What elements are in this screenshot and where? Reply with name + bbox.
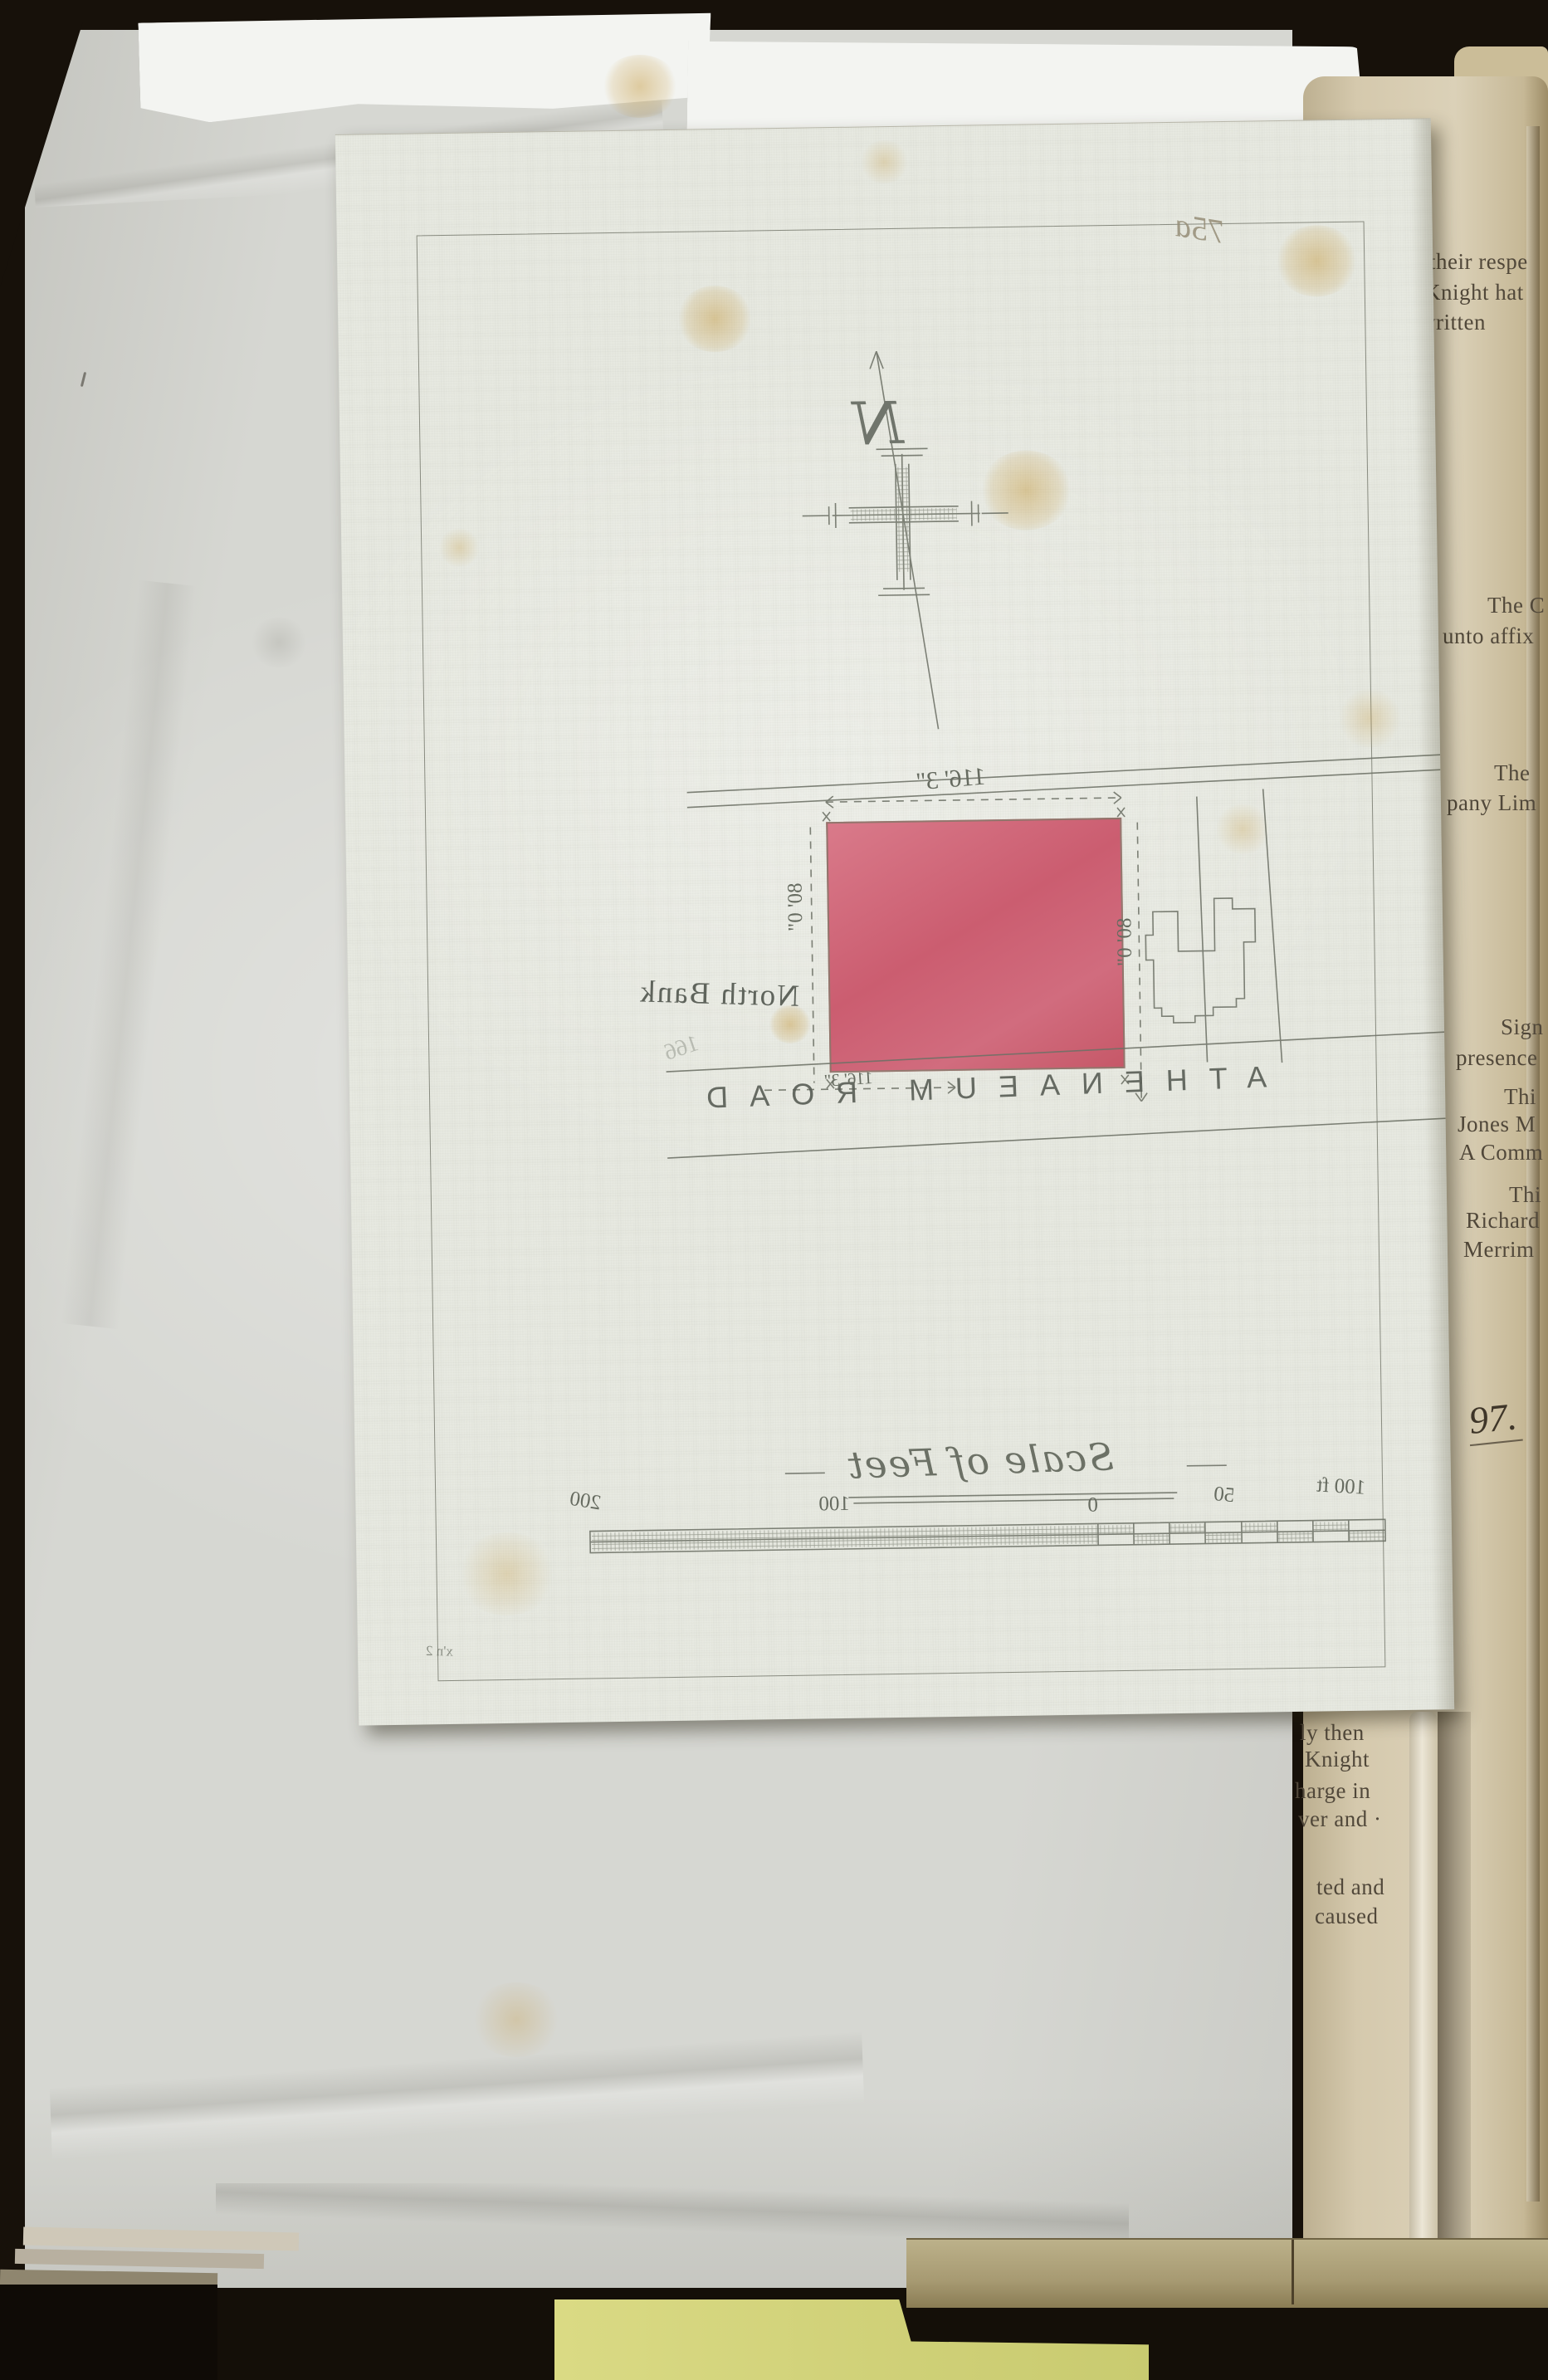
scale-title: Scale of Feet <box>846 1434 1115 1487</box>
sheet-number-annotation: 75a <box>1172 205 1228 252</box>
book-page-fore-edge <box>1409 1712 1438 2283</box>
dimension-bottom: 116' 3" <box>823 1068 873 1092</box>
book-text-fragment: harge in <box>1295 1778 1370 1804</box>
book-text-fragment: presence <box>1456 1045 1537 1071</box>
book-text-fragment: ly then <box>1300 1720 1365 1746</box>
dimension-left: 80' 0" <box>784 882 808 931</box>
book-text-fragment: unto affix <box>1443 623 1534 649</box>
book-text-fragment: their respe <box>1429 249 1528 275</box>
book-text-fragment: Knight hat <box>1424 280 1524 305</box>
book-text-fragment: ted and <box>1316 1874 1384 1900</box>
book-bottom-edge <box>906 2238 1548 2308</box>
page-gap <box>1292 2240 1294 2304</box>
book-text-fragment: Knight <box>1305 1747 1370 1772</box>
scale-tick-label: 0 <box>1087 1493 1098 1517</box>
book-text-fragment: Jones M <box>1458 1112 1536 1137</box>
book-text-fragment: Merrim <box>1463 1237 1534 1263</box>
book-text-fragment: Sign <box>1501 1014 1544 1040</box>
scale-tick-label: 100 <box>818 1493 850 1517</box>
scale-tick-label: 100 ft <box>1316 1473 1365 1499</box>
archival-scan: their respe Knight hat written The C unt… <box>0 0 1548 2380</box>
handwritten-page-number: 97. <box>1465 1394 1522 1446</box>
dimension-right: 80' 0" <box>1113 917 1137 966</box>
book-text-fragment: pany Lim <box>1447 790 1536 816</box>
book-text-fragment: Thi <box>1504 1084 1536 1110</box>
plan-sheet: 75a N North Bank 166 ATHENAEUM ROAD 116'… <box>335 118 1454 1725</box>
book-text-fragment: ver and · <box>1298 1806 1381 1832</box>
book-text-fragment: The C <box>1487 593 1545 618</box>
dimension-top: 116' 3" <box>915 762 987 796</box>
north-bank-label: North Bank <box>638 974 800 1014</box>
book-text-fragment: A Comm <box>1459 1140 1543 1166</box>
surveyor-initials: x'n 2 <box>426 1643 453 1660</box>
book-text-fragment: Thi <box>1509 1182 1541 1208</box>
book-text-fragment: caused <box>1315 1904 1378 1929</box>
book-text-fragment: Richard <box>1466 1208 1540 1234</box>
dark-corner <box>0 2285 217 2380</box>
book-text-fragment: The <box>1494 760 1530 786</box>
page-edge-shadow <box>1438 1712 1471 2283</box>
scale-tick-label: 200 <box>568 1488 602 1516</box>
compass-north-letter: N <box>852 389 903 458</box>
scale-tick-label: 50 <box>1213 1483 1235 1508</box>
